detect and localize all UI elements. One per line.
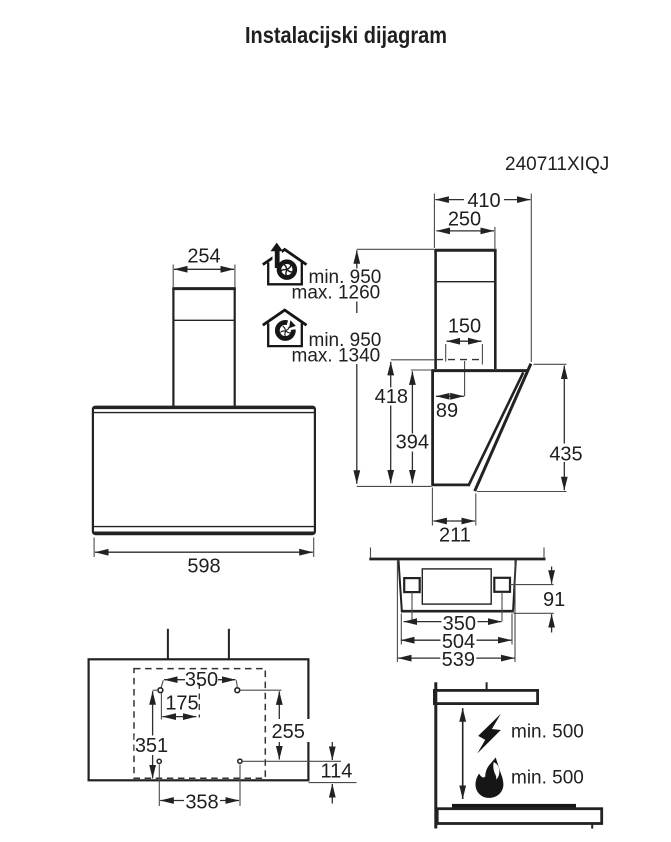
svg-text:250: 250: [448, 208, 481, 230]
svg-text:175: 175: [165, 692, 198, 714]
svg-text:min. 500: min. 500: [511, 721, 584, 742]
svg-text:351: 351: [135, 735, 168, 757]
svg-text:Instalacijski dijagram: Instalacijski dijagram: [245, 22, 447, 48]
svg-text:150: 150: [448, 315, 481, 337]
svg-text:539: 539: [442, 649, 475, 671]
svg-text:240711XIQJ: 240711XIQJ: [505, 154, 609, 175]
svg-text:418: 418: [375, 386, 408, 408]
svg-text:min. 500: min. 500: [511, 767, 584, 788]
svg-text:598: 598: [187, 556, 220, 578]
svg-text:114: 114: [321, 761, 353, 783]
svg-text:435: 435: [549, 443, 582, 465]
svg-text:254: 254: [187, 245, 220, 267]
svg-text:89: 89: [436, 400, 458, 422]
svg-text:358: 358: [185, 791, 218, 813]
svg-text:max. 1340: max. 1340: [292, 345, 381, 366]
svg-text:max. 1260: max. 1260: [292, 282, 381, 303]
svg-text:255: 255: [272, 721, 305, 743]
svg-text:350: 350: [185, 669, 218, 691]
svg-text:91: 91: [543, 589, 565, 611]
svg-text:211: 211: [439, 524, 471, 546]
svg-text:394: 394: [396, 432, 429, 454]
